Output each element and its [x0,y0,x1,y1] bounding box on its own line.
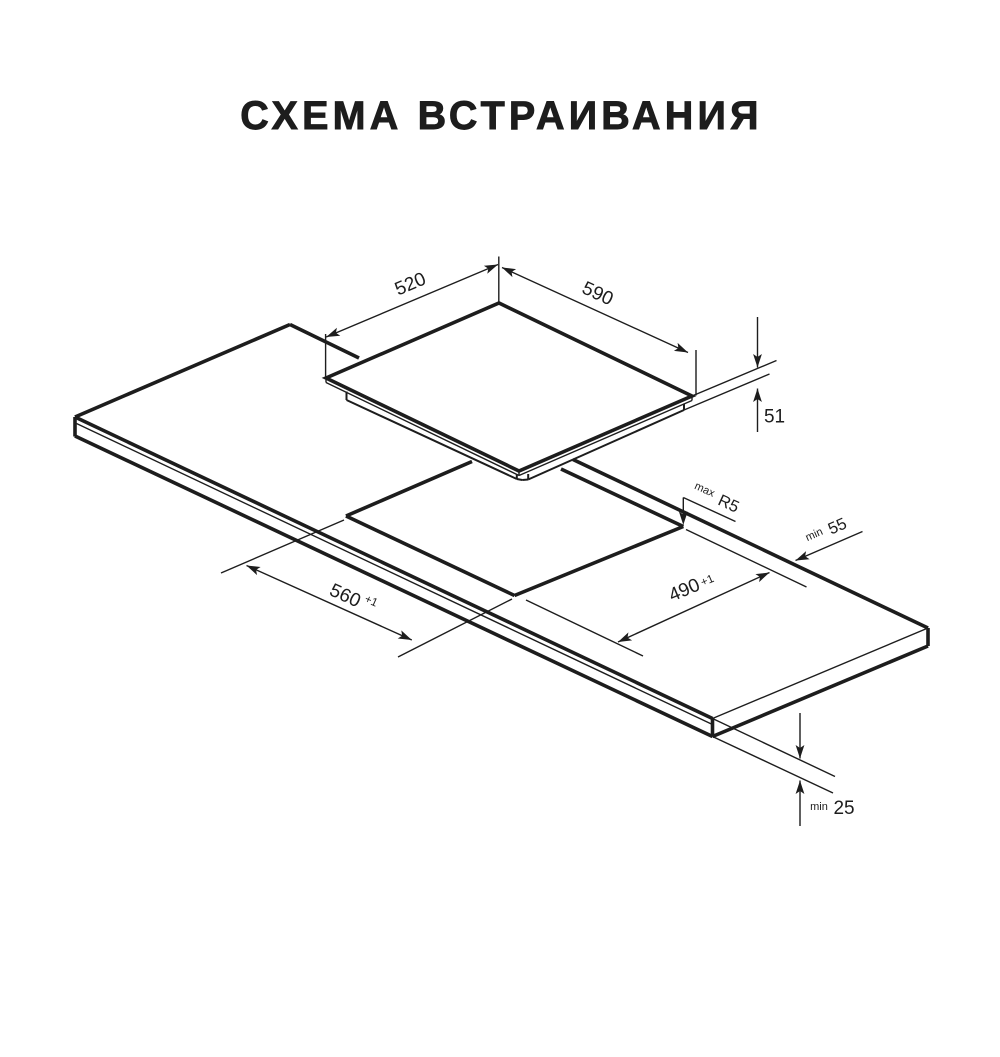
svg-text:490: 490 [666,575,703,607]
svg-text:max: max [693,480,717,500]
svg-text:+1: +1 [363,593,380,609]
svg-text:51: 51 [764,407,785,428]
svg-text:25: 25 [833,798,854,819]
svg-text:min: min [810,801,828,813]
svg-text:min: min [804,526,825,544]
svg-text:55: 55 [825,515,849,539]
svg-text:R5: R5 [715,491,742,516]
svg-text:560: 560 [326,580,364,612]
svg-text:+1: +1 [699,573,716,589]
